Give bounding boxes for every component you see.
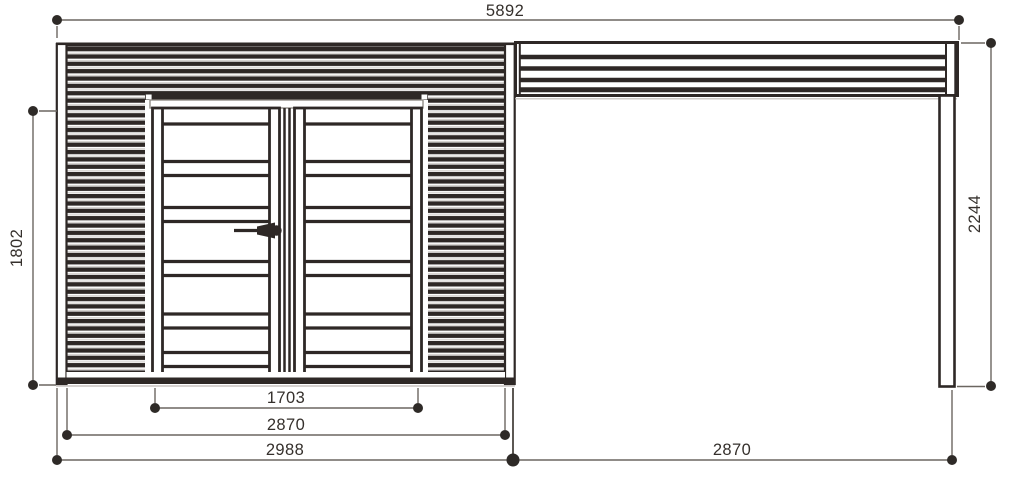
door-assembly [145,92,428,385]
dim-endpoint-dot [28,380,38,390]
dim-label-left-wall-height: 1802 [8,229,26,267]
right-corner-trim [505,44,515,384]
dimension-left-wall-height [33,111,57,385]
dim-endpoint-dot [986,38,996,48]
canopy-fascia [515,43,958,99]
dim-endpoint-dot [500,430,510,440]
dim-endpoint-dot [954,15,964,25]
dim-label-canopy-width: 2870 [713,441,751,459]
dim-endpoint-dot [413,403,423,413]
dim-label-total-width: 5892 [486,2,524,20]
dim-endpoint-dot [28,106,38,116]
left-corner-trim [57,44,67,384]
shed-roof-edge [56,43,515,47]
door-header-end-right [422,95,428,100]
canopy-post [940,96,955,387]
dimension-total-width [57,20,959,40]
dim-endpoint-dot [947,455,957,465]
dim-label-door-width: 1703 [267,389,305,407]
canopy-fascia-end-trim [946,44,955,94]
dim-endpoint-dot [52,455,62,465]
shed-elevation-page: 5892 1802 2244 1703 2870 2988 2870 [0,0,1020,480]
door-header-end-left [146,95,152,100]
door-header-beam [145,92,428,100]
dim-endpoint-dot [52,15,62,25]
door-opening [145,92,428,385]
dim-label-canopy-height: 2244 [966,195,984,233]
dim-endpoint-dot [150,403,160,413]
shed-elevation-drawing: 5892 1802 2244 1703 2870 2988 2870 [0,0,1020,480]
dim-label-shed-wall-width: 2870 [267,416,305,434]
dim-endpoint-dot [986,381,996,391]
dim-endpoint-dot [507,454,520,467]
base-rail [56,372,515,386]
dim-label-shed-overall-width: 2988 [266,441,304,459]
dim-endpoint-dot [62,430,72,440]
